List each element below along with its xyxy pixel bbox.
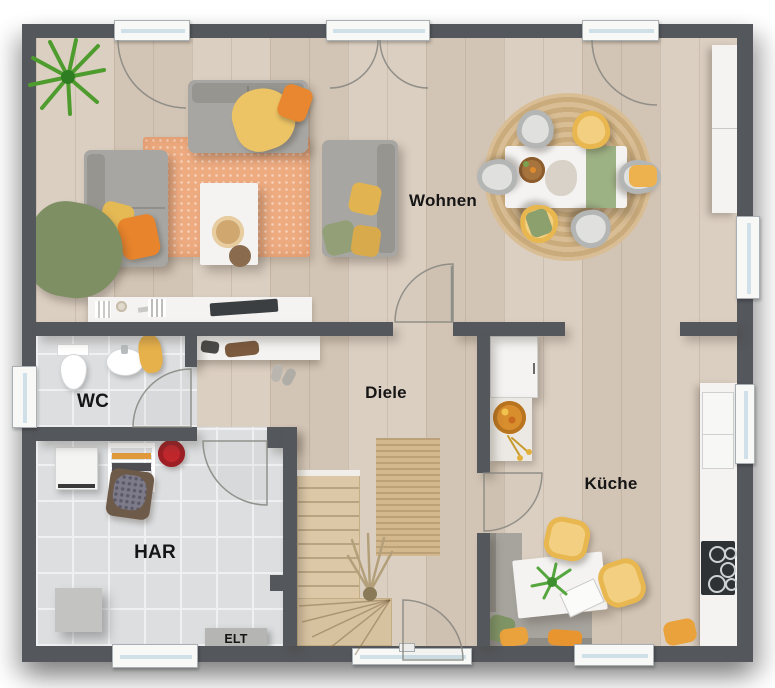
room-label-wc: WC xyxy=(77,391,109,413)
nook-plant xyxy=(532,564,570,598)
fruit-dots xyxy=(502,161,537,424)
stair-fan-lines xyxy=(299,600,390,655)
plan-overlay xyxy=(0,0,775,688)
dried-plant xyxy=(348,534,392,601)
palm-plant xyxy=(30,40,104,114)
room-label-wohnen: Wohnen xyxy=(409,191,477,211)
door-swing-har xyxy=(203,441,267,505)
window-swing-1 xyxy=(118,40,186,108)
room-label-har: HAR xyxy=(134,542,176,564)
room-label-kueche: Küche xyxy=(585,474,638,494)
door-swing-kitchen xyxy=(484,473,542,531)
door-swing-entrance xyxy=(403,600,463,660)
floor-plan: Wohnen Diele WC HAR Küche ELT xyxy=(0,0,775,688)
window-swing-2a xyxy=(330,40,378,88)
room-label-diele: Diele xyxy=(365,383,407,403)
window-swing-3 xyxy=(592,40,657,105)
window-swing-2b xyxy=(380,40,428,88)
room-label-elt: ELT xyxy=(224,632,247,646)
door-swing-wc xyxy=(133,369,191,427)
door-swing-living xyxy=(395,264,453,322)
kitchen-flowers xyxy=(508,436,532,461)
